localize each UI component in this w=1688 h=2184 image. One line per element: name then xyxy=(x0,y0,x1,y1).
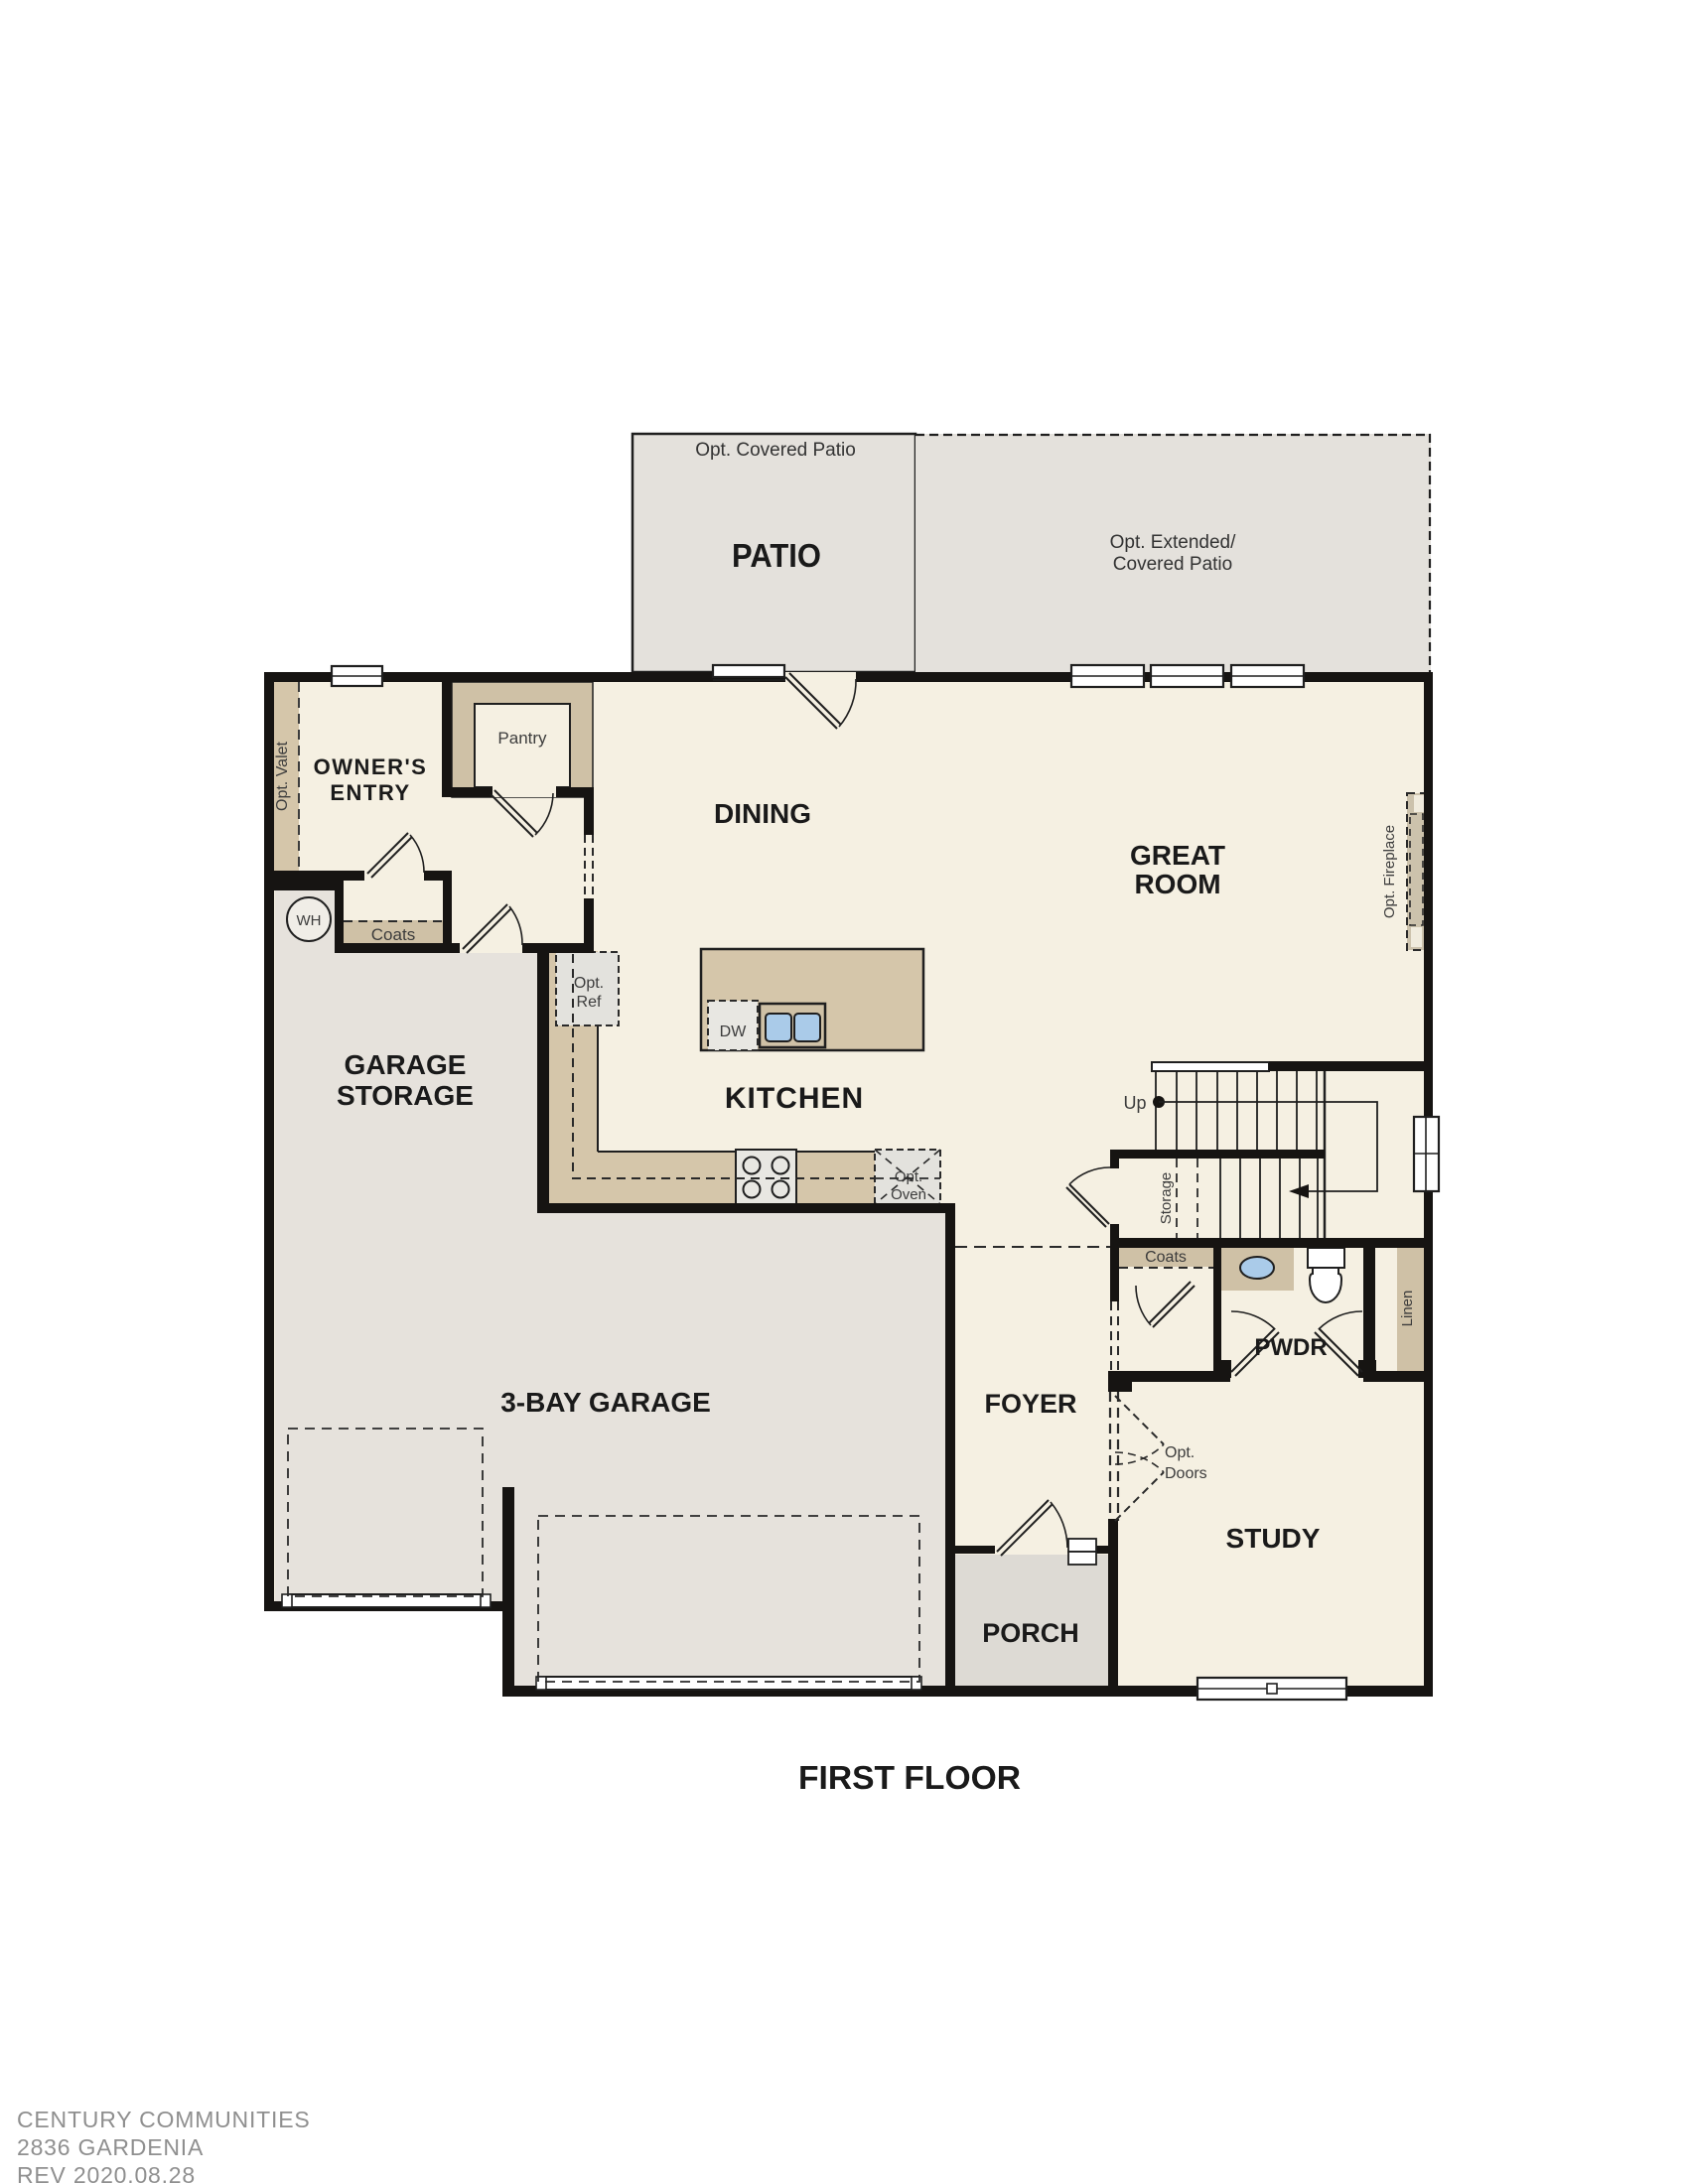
svg-text:3-BAY GARAGE: 3-BAY GARAGE xyxy=(500,1387,711,1418)
svg-text:REV 2020.08.28: REV 2020.08.28 xyxy=(17,2162,196,2184)
svg-text:Pantry: Pantry xyxy=(497,729,547,748)
svg-text:Covered Patio: Covered Patio xyxy=(1113,554,1232,575)
svg-text:GARAGE: GARAGE xyxy=(345,1049,467,1080)
svg-text:ENTRY: ENTRY xyxy=(330,780,410,805)
svg-text:Storage: Storage xyxy=(1158,1172,1175,1225)
svg-text:Oven: Oven xyxy=(891,1186,926,1203)
svg-text:Linen: Linen xyxy=(1399,1291,1416,1327)
svg-text:Opt.: Opt. xyxy=(895,1168,922,1185)
svg-text:DINING: DINING xyxy=(714,798,811,829)
svg-text:2836 GARDENIA: 2836 GARDENIA xyxy=(17,2134,204,2160)
svg-text:PATIO: PATIO xyxy=(732,537,821,574)
svg-text:OWNER'S: OWNER'S xyxy=(314,754,428,779)
svg-text:Opt. Extended/: Opt. Extended/ xyxy=(1110,532,1236,553)
svg-text:Opt.: Opt. xyxy=(574,975,604,992)
svg-text:WH: WH xyxy=(297,912,322,929)
svg-text:Opt.: Opt. xyxy=(1165,1444,1195,1461)
svg-text:Ref: Ref xyxy=(577,994,602,1011)
svg-text:Doors: Doors xyxy=(1165,1465,1207,1482)
svg-text:FOYER: FOYER xyxy=(984,1389,1076,1419)
svg-text:DW: DW xyxy=(720,1024,748,1040)
svg-text:Up: Up xyxy=(1123,1093,1146,1113)
svg-text:Opt. Fireplace: Opt. Fireplace xyxy=(1381,825,1398,918)
svg-text:STUDY: STUDY xyxy=(1226,1523,1321,1554)
svg-text:PWDR: PWDR xyxy=(1254,1334,1327,1361)
svg-text:FIRST FLOOR: FIRST FLOOR xyxy=(798,1759,1021,1796)
svg-text:Opt. Covered Patio: Opt. Covered Patio xyxy=(695,440,856,461)
svg-text:Opt. Valet: Opt. Valet xyxy=(274,741,291,811)
svg-text:STORAGE: STORAGE xyxy=(337,1080,474,1111)
svg-text:Coats: Coats xyxy=(371,925,415,944)
svg-text:KITCHEN: KITCHEN xyxy=(725,1082,864,1115)
svg-text:CENTURY COMMUNITIES: CENTURY COMMUNITIES xyxy=(17,2107,310,2132)
svg-text:PORCH: PORCH xyxy=(982,1618,1079,1648)
svg-text:ROOM: ROOM xyxy=(1134,869,1220,899)
svg-text:Coats: Coats xyxy=(1145,1249,1187,1266)
svg-text:GREAT: GREAT xyxy=(1130,840,1225,871)
